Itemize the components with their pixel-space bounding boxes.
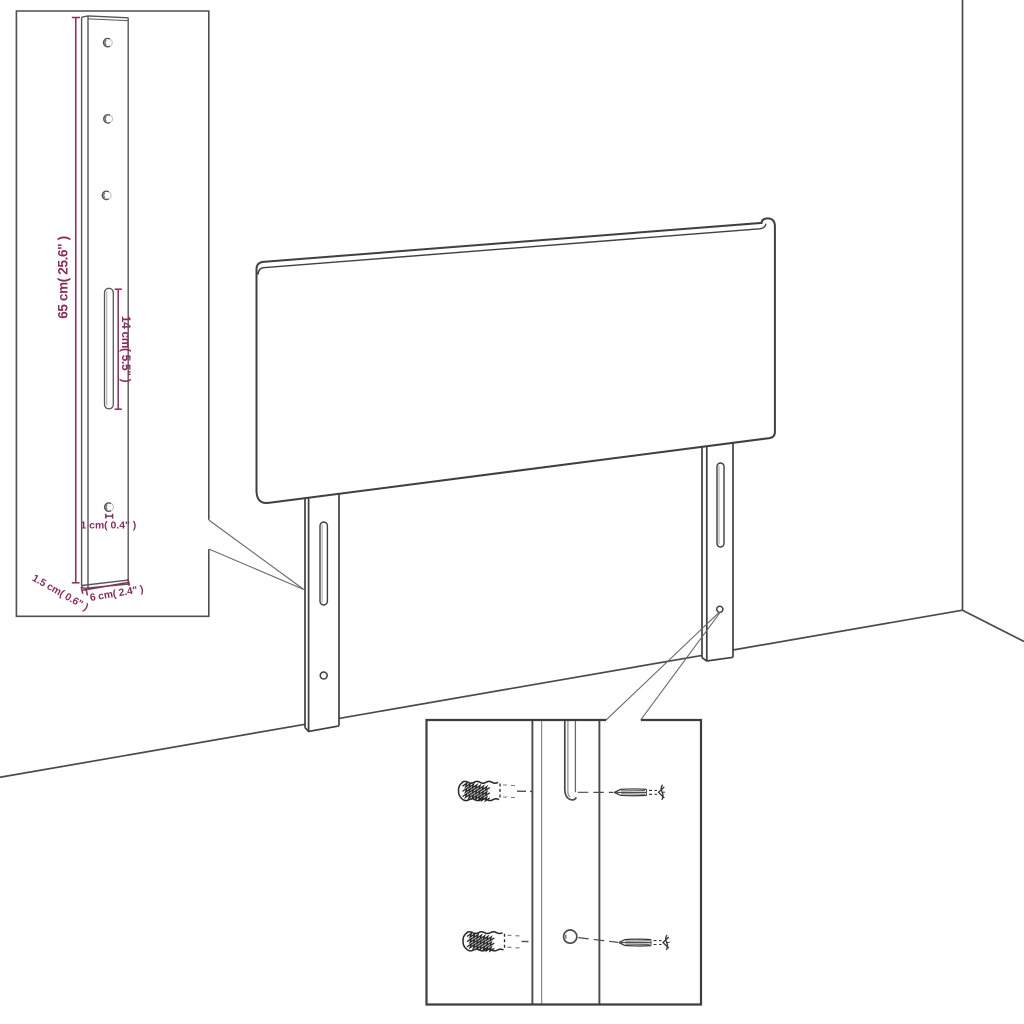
svg-text:65 cm( 25.6" ): 65 cm( 25.6" ) [56,236,71,319]
svg-text:1 cm( 0.4" ): 1 cm( 0.4" ) [81,521,137,532]
svg-text:14 cm( 5.5" ): 14 cm( 5.5" ) [119,316,133,383]
